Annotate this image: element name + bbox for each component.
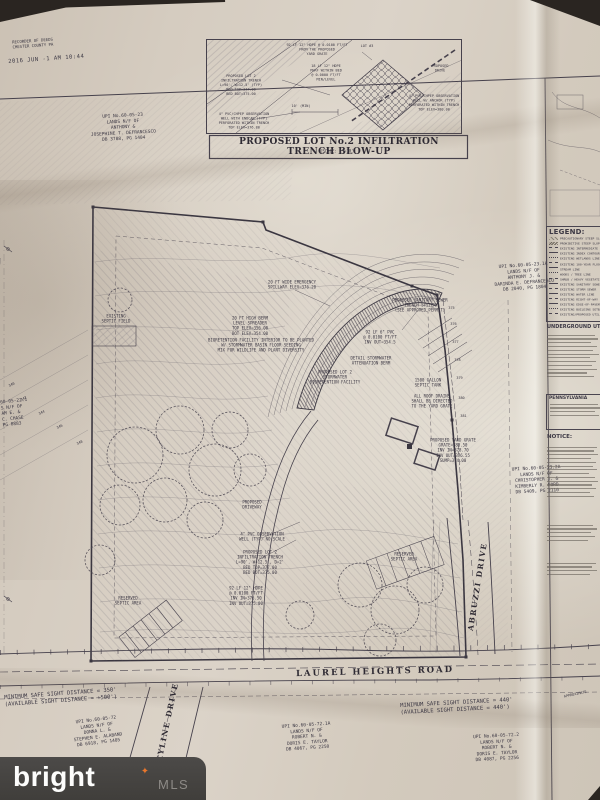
blowup-label-hdpe: 92 LF 12" HDPE @ 0.0100 FT/FT FROM THE P… bbox=[278, 43, 356, 56]
label-ohw: OHW bbox=[0, 252, 1, 270]
micro-text-block bbox=[546, 332, 598, 377]
contour-label: 380 bbox=[454, 396, 469, 400]
legend-item: EXISTING WETLANDS LINE bbox=[560, 257, 600, 261]
legend-swatch bbox=[549, 242, 558, 245]
watermark-mls: MLS bbox=[158, 777, 189, 792]
legend-symbol bbox=[549, 283, 558, 287]
micro-text-block bbox=[546, 522, 598, 541]
label-reserved-septic-left: RESERVED SEPTIC AREA bbox=[100, 596, 156, 606]
legend-swatch bbox=[549, 237, 558, 240]
legend-symbol bbox=[549, 247, 558, 251]
legend-column: LEGEND: PRECAUTIONARY STEEP SLOPES (15% … bbox=[546, 226, 600, 800]
legend-symbol bbox=[549, 252, 558, 256]
legend-symbol bbox=[549, 303, 558, 307]
legend-item: EXISTING SANITARY SEWER bbox=[560, 283, 600, 287]
legend-item: STREAM LINE bbox=[560, 267, 580, 271]
legend-symbol bbox=[549, 257, 558, 261]
legend-item: EXISTING INDEX CONTOUR bbox=[560, 252, 600, 256]
legend-item: EXISTING STORM SEWER bbox=[560, 288, 596, 292]
parcel-taylor-2: UPI No.60-05-72.2 LANDS N/F OF ROBERT N.… bbox=[448, 731, 545, 765]
legend-item: EXISTING BUILDING SETBACK bbox=[560, 308, 600, 312]
label-hdpe-main: 92 LF 12" HDPE @ 0.0100 FT/FT INV IN=376… bbox=[214, 586, 278, 606]
legend-symbol bbox=[549, 288, 558, 292]
legend-item: PROHIBITIVE STEEP SLOPES (GREATER THAN 2… bbox=[560, 242, 600, 246]
legend-symbol bbox=[549, 262, 558, 266]
contour-label: 378 bbox=[450, 358, 465, 362]
label-spillway: 20 FT WIDE EMERGENCY SPILLWAY ELEV=376.2… bbox=[252, 280, 332, 290]
legend-item: EXISTING WATER LINE bbox=[560, 293, 594, 297]
legend-symbol bbox=[549, 272, 558, 276]
legend-symbol bbox=[549, 308, 558, 312]
legend-item: EXISTING 100-YEAR FLOODPLAIN bbox=[560, 262, 600, 266]
contour-label: 377 bbox=[448, 340, 463, 344]
legend-title: LEGEND: bbox=[549, 228, 600, 236]
notice-title: NOTICE: bbox=[547, 434, 572, 440]
legend-item: EXISTING/PROPOSED UTILITY bbox=[560, 313, 600, 317]
legend-item: WOODS / TREE LINE bbox=[560, 272, 591, 276]
bright-mls-watermark: bright ✦ MLS bbox=[0, 757, 206, 800]
legend-symbol bbox=[549, 313, 558, 317]
contour-label: 379 bbox=[452, 376, 467, 380]
pennsylvania-box: PENNSYLVANIA bbox=[546, 394, 600, 430]
label-driveway: PROPOSED DRIVEWAY bbox=[226, 500, 278, 510]
blowup-label-ten-min: 10' (MIN) bbox=[284, 104, 318, 108]
label-trench-main: PROPOSED LOT 2 INFILTRATION TRENCH L=90'… bbox=[222, 550, 298, 576]
pennsylvania-title: PENNSYLVANIA bbox=[549, 396, 600, 401]
label-bioretention-facility: PROPOSED LOT 2 STORMWATER BIORETENTION F… bbox=[300, 370, 370, 385]
legend-item: SHRUB / HEAVY VEGETATION bbox=[560, 278, 600, 282]
watermark-brand: bright bbox=[13, 761, 95, 793]
label-reserved-septic-right: RESERVED SEPTIC AREA bbox=[376, 552, 432, 562]
blowup-label-obs-well-left: 4" PVC/CHPEP OBSERVATION WELL WITH ENDCA… bbox=[208, 112, 280, 130]
label-septic-tank: 1500 GALLON SEPTIC TANK bbox=[400, 378, 456, 388]
contour-label: 381 bbox=[456, 414, 471, 418]
label-obs-well: 4" PVC OBSERVATION WELL (TYP) NO SCALE bbox=[226, 532, 298, 542]
legend-symbol bbox=[549, 298, 558, 302]
blowup-label-hdpe-perf: 18 LF 12" HDPE PERF WITHIN BED @ 0.0000 … bbox=[300, 64, 352, 82]
contour-label: 376 bbox=[446, 322, 461, 326]
legend-item: EXISTING INTERMEDIATE CONTOUR bbox=[560, 247, 600, 251]
label-existing-septic: EXISTING SEPTIC FIELD bbox=[88, 314, 144, 324]
blowup-scale: (SCALE: 1"=10') bbox=[288, 149, 388, 154]
blowup-label-lot3: LOT #3 bbox=[352, 44, 382, 48]
legend-symbol bbox=[549, 293, 558, 297]
legend-item: PRECAUTIONARY STEEP SLOPES (15% TO 25%) bbox=[560, 237, 600, 241]
watermark-star-icon: ✦ bbox=[141, 763, 149, 778]
legend-symbol bbox=[549, 267, 558, 271]
label-pvc6: 92 LF 6" PVC @ 0.0100 FT/FT INV OUT=354.… bbox=[352, 330, 408, 345]
blowup-label-drive: PROPOSED DRIVE bbox=[420, 64, 460, 73]
micro-text-block bbox=[546, 560, 598, 575]
site-plan-photo: RECORDER OF DEEDS CHESTER COUNTY PA 2016… bbox=[0, 0, 600, 800]
legend-box: LEGEND: PRECAUTIONARY STEEP SLOPES (15% … bbox=[546, 226, 600, 322]
legend-symbol bbox=[549, 278, 558, 282]
parcel-defrancesco-top: UPI No.60-05-23 LANDS N/F OF ANTHONY & J… bbox=[70, 111, 176, 145]
legend-item: EXISTING EDGE-OF-PAVEMENT bbox=[560, 303, 600, 307]
blowup-label-trench: PROPOSED LOT 2 INFILTRATION TRENCH L=90'… bbox=[210, 74, 272, 96]
label-yard-grate: PROPOSED YARD GRATE GRATE=380.50 INV IN=… bbox=[418, 438, 488, 464]
parcel-chase-left: 60-05-22.1 S N/F OF AM E. & C. CHASE PG … bbox=[0, 395, 53, 429]
label-berm-spreader: 20 FT HIGH BERM LEVEL SPREADER TOP ELEV=… bbox=[218, 316, 282, 336]
label-bioretention-note: BIORETENTION FACILITY INTERIOR TO BE PLA… bbox=[186, 338, 336, 353]
label-attenuation: DETAIL STORMWATER ATTENUATION BERM bbox=[336, 356, 406, 366]
micro-text-block bbox=[546, 444, 598, 497]
contour-label: 375 bbox=[444, 306, 459, 310]
blowup-label-obs-well-right: 4" PVC/CHPEP OBSERVATION WELL W/ ANCHOR … bbox=[404, 94, 464, 112]
legend-item: EXISTING RIGHT-OF-WAY bbox=[560, 298, 598, 302]
underground-title: UNDERGROUND UTILITIES bbox=[547, 324, 600, 330]
